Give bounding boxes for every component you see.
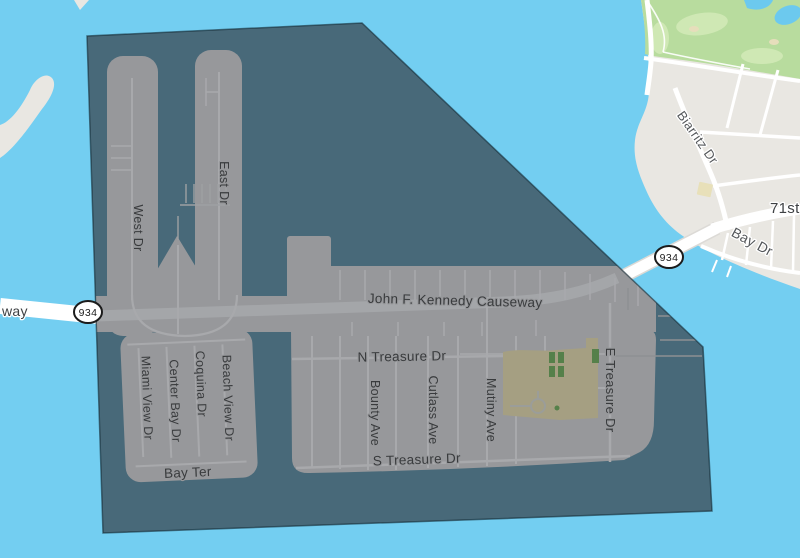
street-label-center-bay-dr: Center Bay Dr xyxy=(167,359,184,443)
route-shield-934-east: 934 xyxy=(655,246,683,268)
street-label-bay-ter: Bay Ter xyxy=(164,464,212,481)
street-label-s-treasure-dr: S Treasure Dr xyxy=(373,450,462,468)
street-label-coquina-dr: Coquina Dr xyxy=(193,351,209,418)
sand-bunker xyxy=(769,39,779,45)
street-label-e-treasure-dr: E Treasure Dr xyxy=(603,348,618,433)
treasure-island-south xyxy=(291,330,656,473)
street-label-71st-st: 71st St xyxy=(770,200,800,217)
route-shield-934-west: 934 xyxy=(74,301,102,323)
map-canvas[interactable]: way Biarritz Dr 71st St Bay Dr xyxy=(0,0,800,558)
street-label-causeway-partial: way xyxy=(1,303,28,319)
map-viewport[interactable]: way Biarritz Dr 71st St Bay Dr xyxy=(0,0,800,558)
street-label-miami-view-dr: Miami View Dr xyxy=(139,356,156,441)
street-label-n-treasure-dr: N Treasure Dr xyxy=(357,348,446,365)
street-label-east-dr: East Dr xyxy=(217,161,231,205)
street-label-mutiny-ave: Mutiny Ave xyxy=(484,378,498,442)
shield-label: 934 xyxy=(79,307,98,319)
fairway-patch xyxy=(651,22,669,54)
shield-label: 934 xyxy=(660,252,679,264)
street-label-cutlass-ave: Cutlass Ave xyxy=(426,375,440,444)
street-label-west-dr: West Dr xyxy=(131,204,145,251)
fairway-patch xyxy=(741,48,783,64)
street-label-bounty-ave: Bounty Ave xyxy=(368,380,382,446)
sand-bunker xyxy=(689,26,699,32)
north-block xyxy=(287,236,331,302)
